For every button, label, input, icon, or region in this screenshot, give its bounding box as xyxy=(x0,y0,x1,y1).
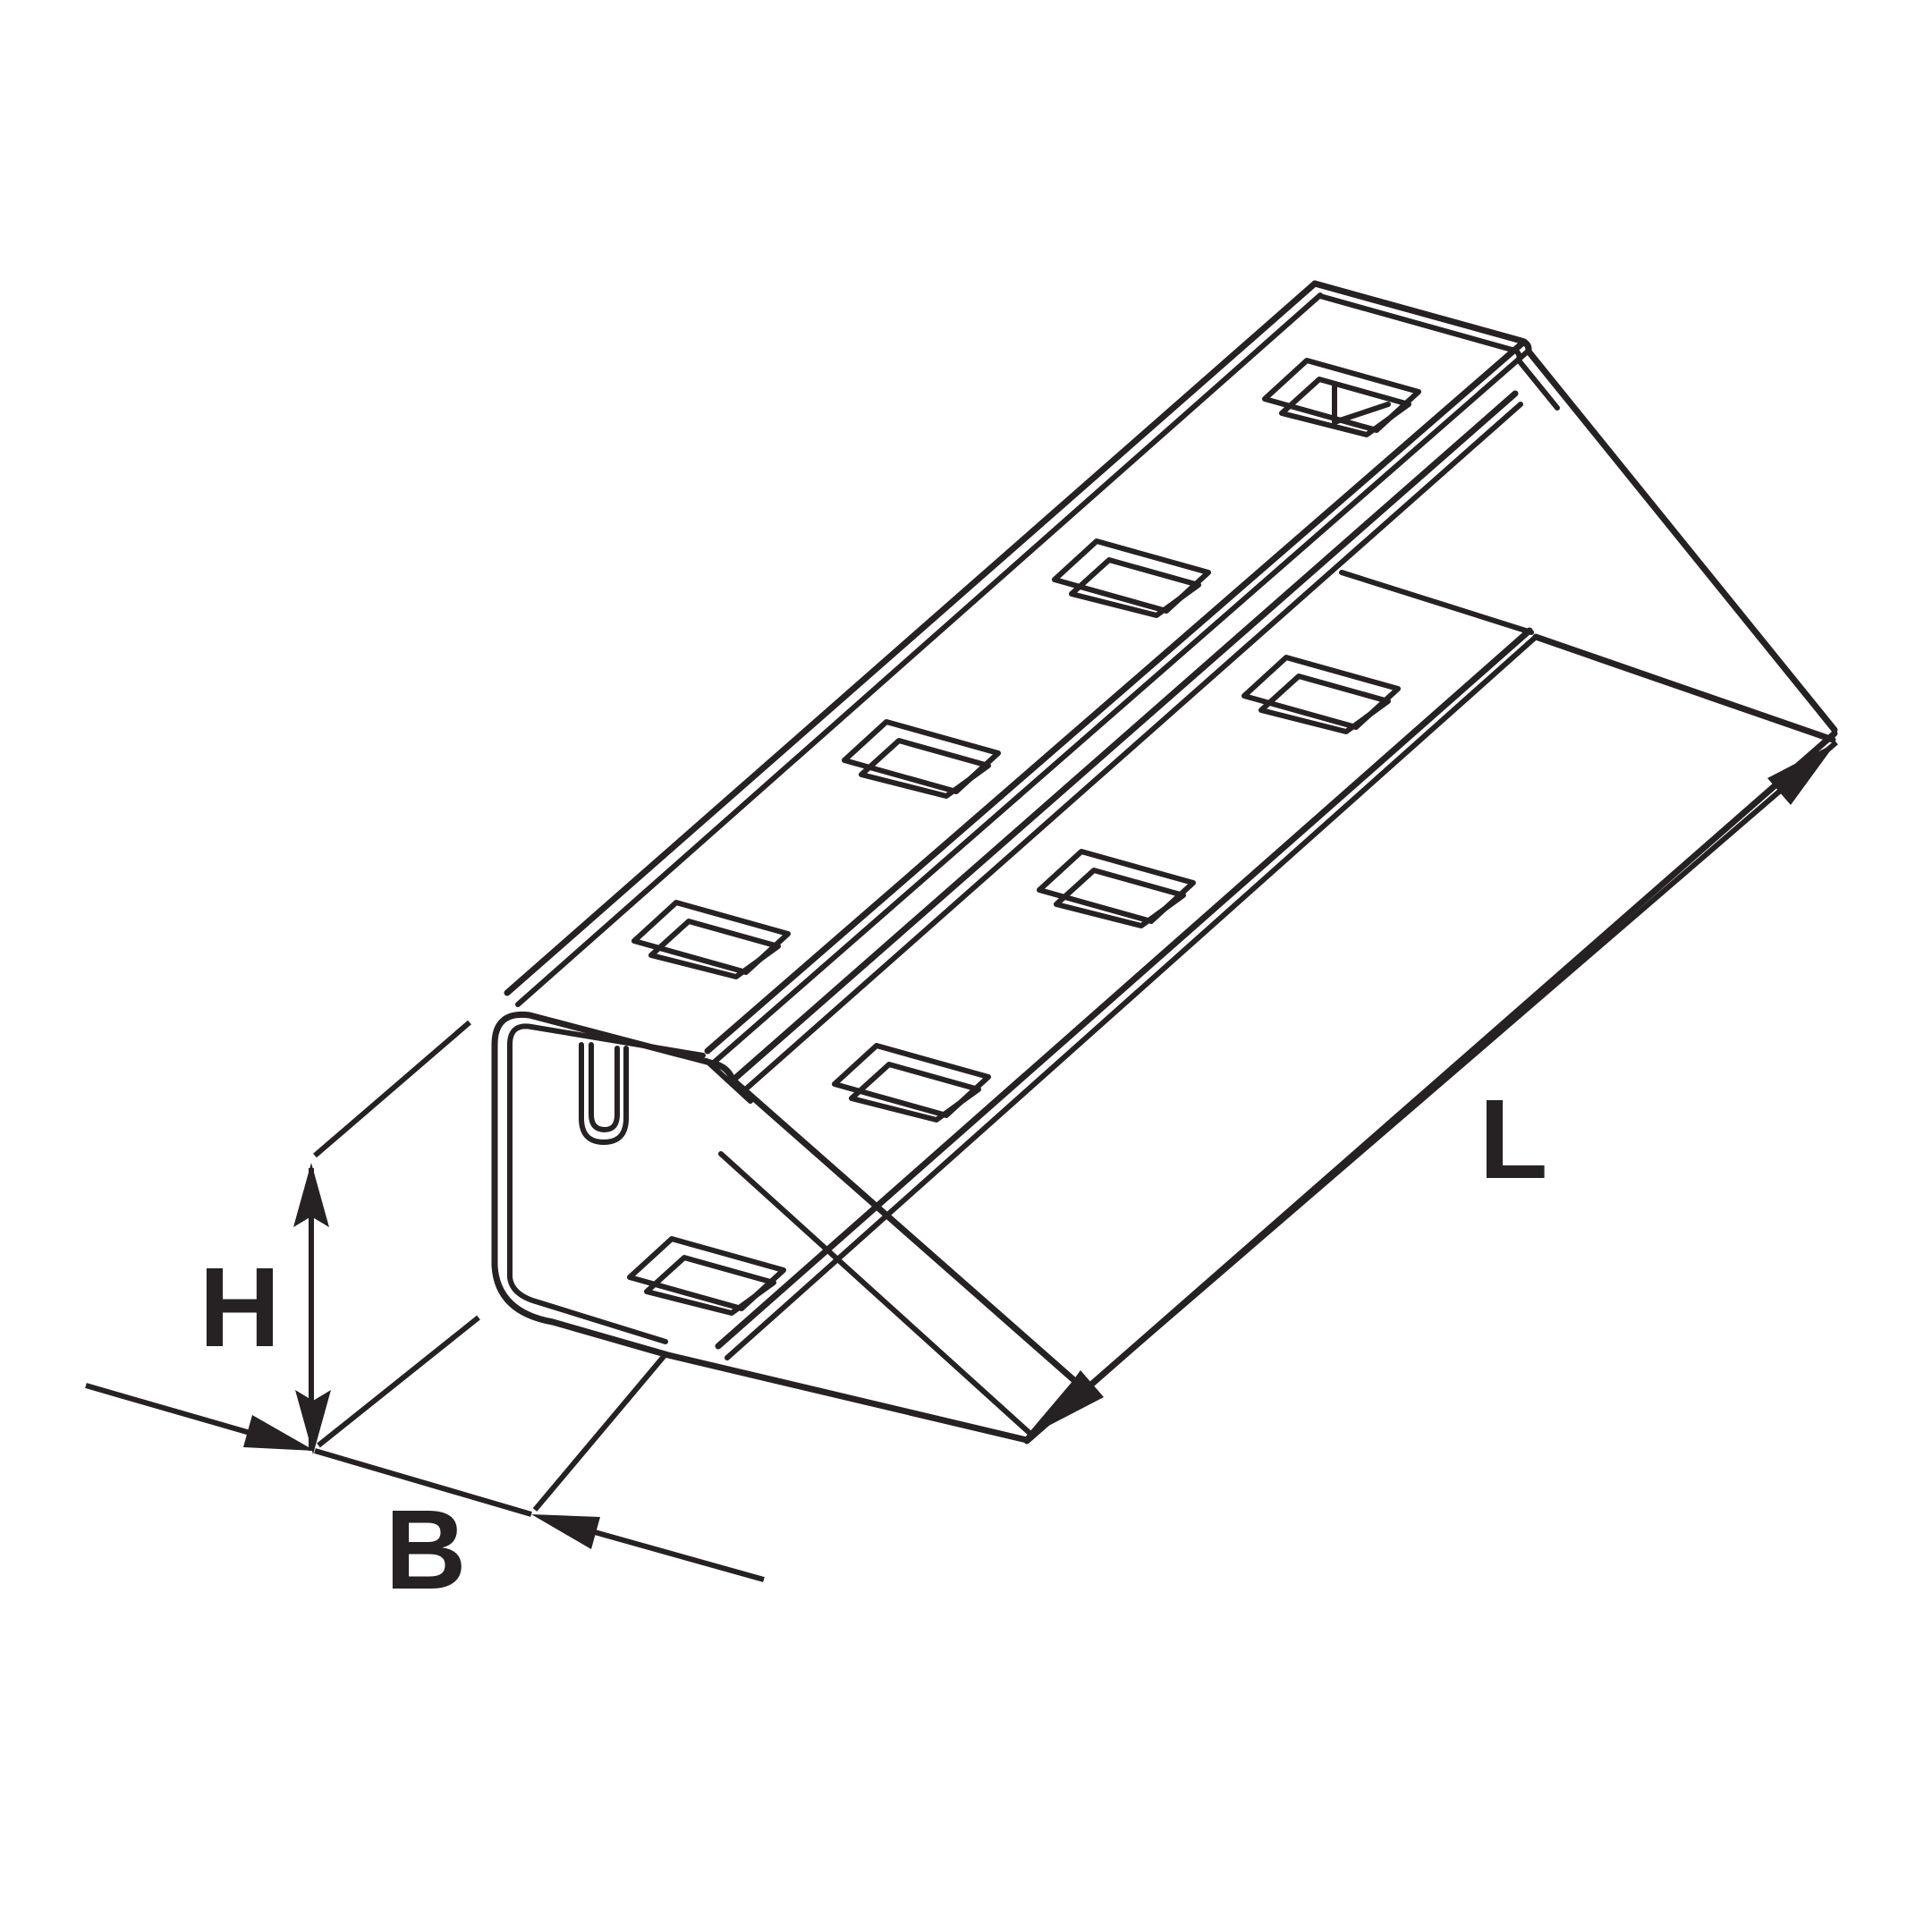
l-dimension-line xyxy=(1035,742,1836,1433)
web-top-edge-outer xyxy=(507,284,1315,993)
channel-profile xyxy=(495,284,1835,1441)
base-far-edge xyxy=(1536,637,1833,740)
far-interior-edge xyxy=(1342,572,1531,632)
web-slot-1 xyxy=(634,902,788,977)
flange-slot-4 xyxy=(1244,657,1398,732)
l-label: L xyxy=(1479,1076,1548,1202)
b-arrow-line-left xyxy=(86,1385,259,1436)
dimension-width: B xyxy=(86,1353,764,1613)
dimension-height: H xyxy=(199,1022,479,1454)
b-label: B xyxy=(386,1487,467,1613)
h-extension-bottom xyxy=(318,1318,479,1445)
near-end-inner-left xyxy=(510,1026,703,1342)
b-arrowhead-right xyxy=(531,1514,600,1549)
web-top-edge-inner xyxy=(518,295,1320,1004)
far-end-outline xyxy=(1315,284,1835,730)
flange-slot-1 xyxy=(630,1239,784,1313)
technical-drawing-canvas: H B L xyxy=(0,0,1932,1932)
dimension-length: L xyxy=(1035,742,1836,1433)
b-extension-right xyxy=(535,1353,666,1510)
web-slot-2 xyxy=(844,722,998,796)
web-slot-3 xyxy=(1055,541,1208,615)
flange-slot-2 xyxy=(835,1046,988,1120)
flange-slot-3 xyxy=(1039,852,1193,926)
h-extension-top xyxy=(315,1022,470,1156)
web-ridge-outer xyxy=(708,342,1524,1051)
h-label: H xyxy=(199,1244,281,1370)
channel-profile-drawing: H B L xyxy=(0,0,1932,1932)
flange-ridge-outer xyxy=(733,394,1515,1080)
b-arrow-line-right xyxy=(595,1532,764,1580)
near-end-flange-inner-edge xyxy=(721,1154,1030,1433)
end-tab-inner xyxy=(591,1045,617,1130)
web-slot-4 xyxy=(1265,360,1419,435)
